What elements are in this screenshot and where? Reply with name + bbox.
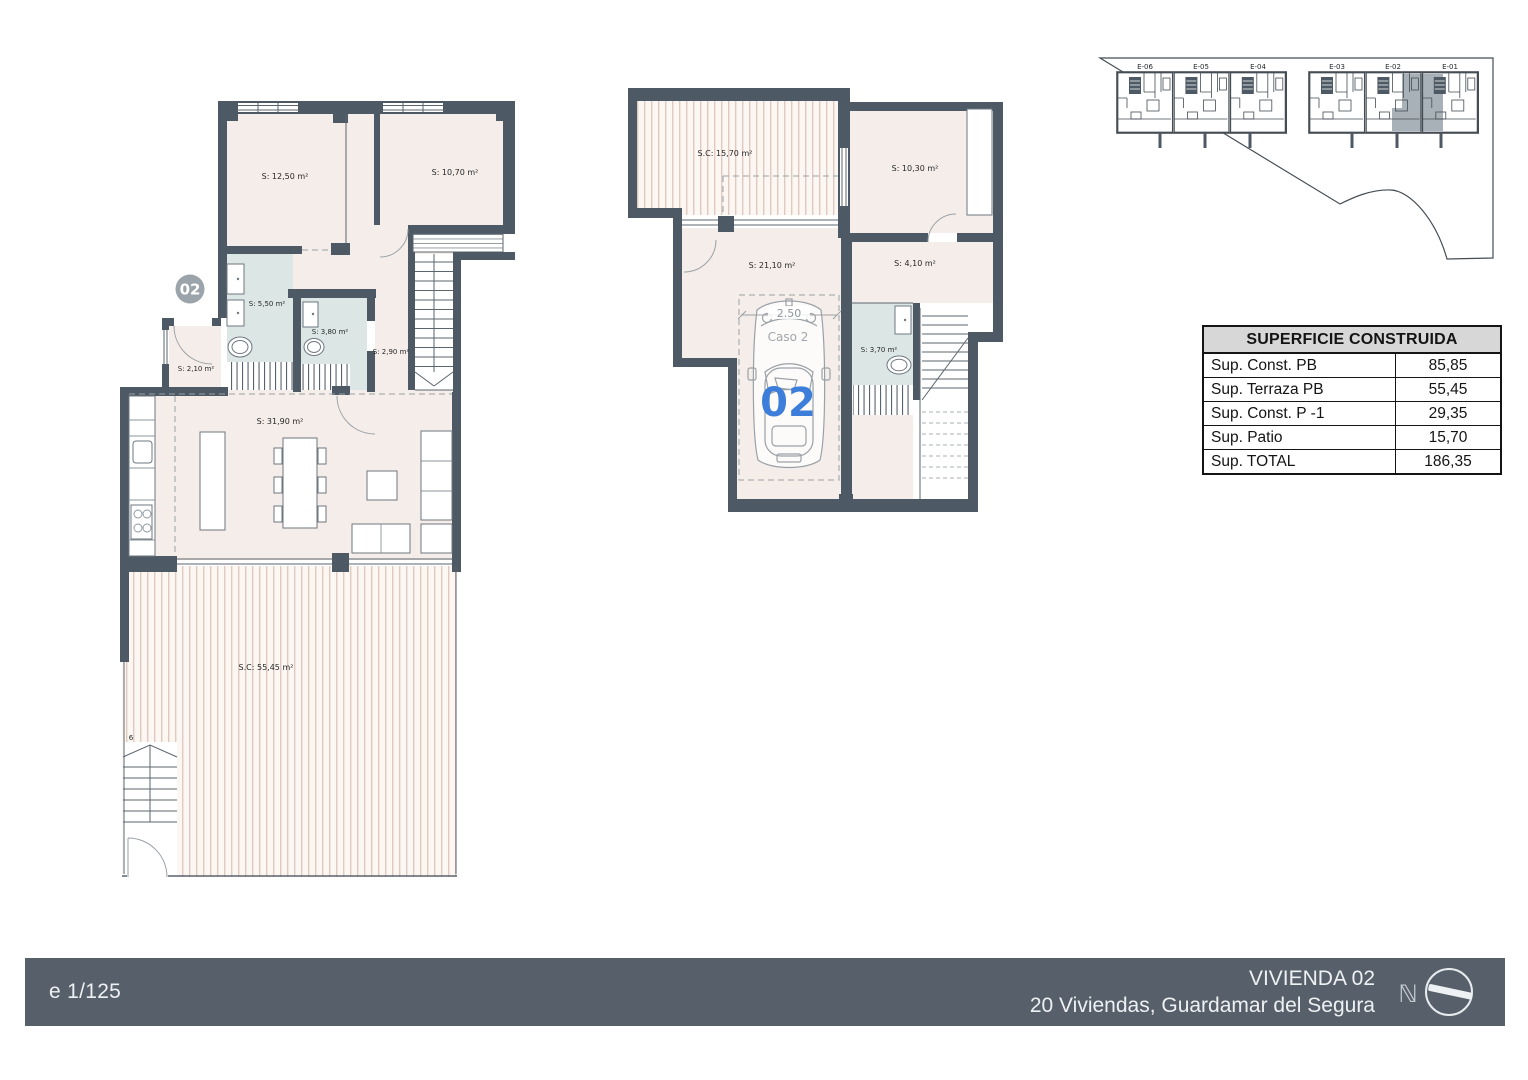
site-unit-label: E-04 xyxy=(1250,63,1266,71)
stool xyxy=(421,524,452,553)
site-unit-label: E-05 xyxy=(1193,63,1209,71)
kitchen-sink xyxy=(133,441,152,463)
north-letter: ℕ xyxy=(1398,980,1417,1008)
site-unit-label: E-06 xyxy=(1137,63,1153,71)
drawing-sheet: e 1/125 VIVIENDA 02 20 Viviendas, Guarda… xyxy=(0,0,1528,1080)
shower-1 xyxy=(227,362,293,390)
unit-badge-number: 02 xyxy=(180,281,201,299)
site-plan: E-06 E-05 E-04 E-03 E-02 E-01 xyxy=(1100,58,1493,259)
room-label-patio: S.C: 15,70 m² xyxy=(698,149,753,158)
dimension-text: 2.50 xyxy=(777,307,802,320)
site-unit-label: E-02 xyxy=(1385,63,1401,71)
room-label-bedroom2: S: 10,70 m² xyxy=(432,168,479,177)
patio-decking xyxy=(637,101,838,215)
room-label-terrace: S.C: 55,45 m² xyxy=(239,663,294,672)
compass-needle xyxy=(1428,984,1472,1000)
ground-floor-plan: 6 xyxy=(120,101,515,880)
louver-window xyxy=(413,234,503,252)
north-indicator: ℕ xyxy=(1398,969,1472,1015)
entry-door-opening xyxy=(174,318,212,326)
dining-table xyxy=(283,438,317,528)
stair-number: 6 xyxy=(129,734,134,742)
window xyxy=(162,330,169,364)
room-label-bath: S: 3,70 m² xyxy=(861,346,898,354)
lower-floor-plan: 2.50 Caso 2 02 S.C: 15,70 m² S: 10,30 m²… xyxy=(628,88,1003,512)
room-label-bedroom: S: 10,30 m² xyxy=(892,164,939,173)
site-unit-label: E-01 xyxy=(1442,63,1458,71)
room-label-garage: S: 21,10 m² xyxy=(749,261,796,270)
room-label-storage: S: 4,10 m² xyxy=(894,259,936,268)
room-label-bath1: S: 5,50 m² xyxy=(249,300,286,308)
room-label-bedroom1: S: 12,50 m² xyxy=(262,172,309,181)
floor-plan-drawing: 6 xyxy=(0,0,1528,1080)
room-label-living: S: 31,90 m² xyxy=(257,417,304,426)
wardrobe xyxy=(967,109,992,215)
site-unit-label: E-03 xyxy=(1329,63,1345,71)
shower-3 xyxy=(853,385,913,415)
car-case-label: Caso 2 xyxy=(768,330,809,344)
unit-badge: 02 xyxy=(176,275,205,304)
room-label-entry: S: 2,10 m² xyxy=(178,365,215,373)
window xyxy=(383,103,443,112)
window xyxy=(238,103,298,112)
kitchen-island xyxy=(200,432,225,530)
window xyxy=(840,148,848,206)
car-unit-number: 02 xyxy=(760,380,816,426)
room-label-hall: S: 2,90 m² xyxy=(373,348,410,356)
door-opening xyxy=(928,233,957,242)
sofa xyxy=(421,431,452,520)
side-table xyxy=(367,471,397,500)
room-label-bath2: S: 3,80 m² xyxy=(312,328,349,336)
